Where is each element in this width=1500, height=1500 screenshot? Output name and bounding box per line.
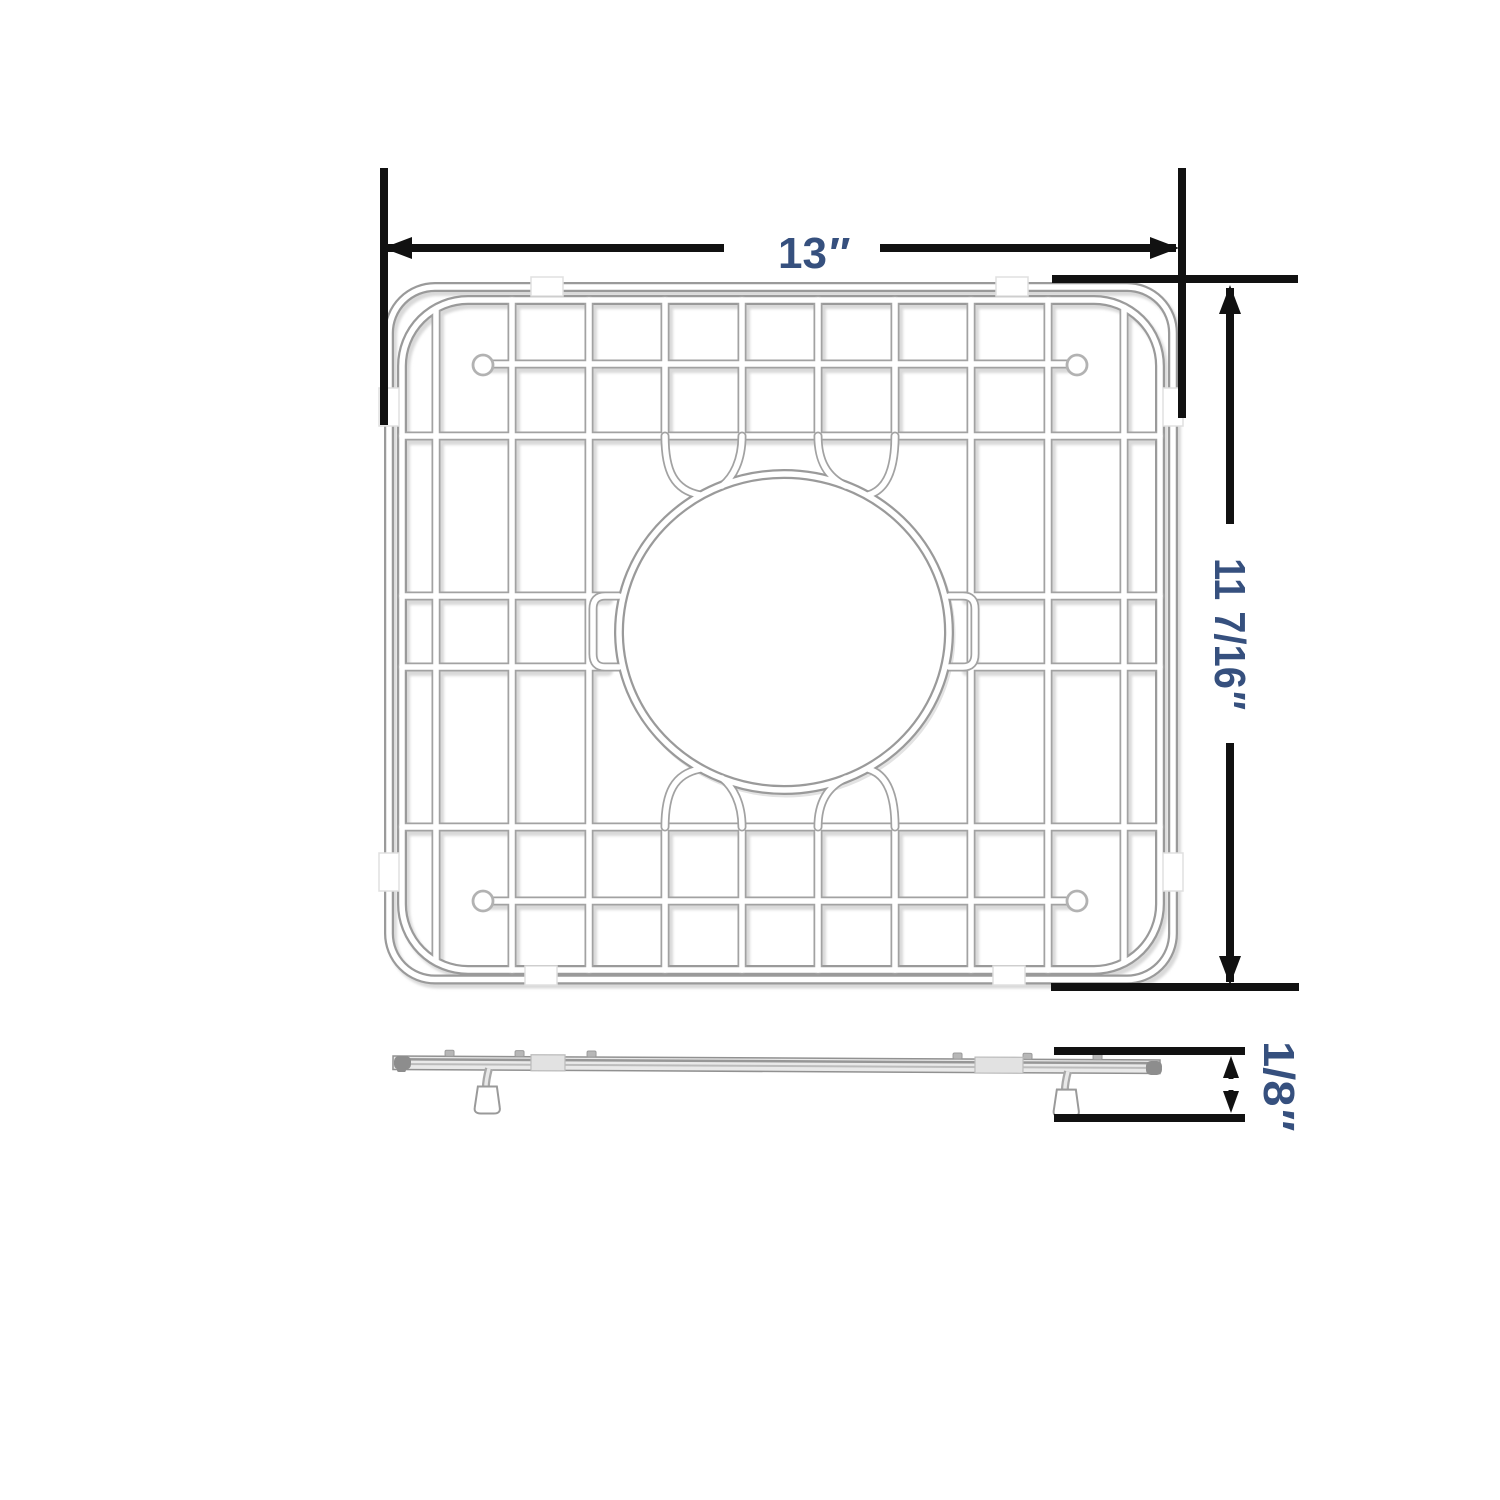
svg-text:13″: 13″	[778, 229, 850, 278]
svg-text:11 7/16″: 11 7/16″	[1205, 558, 1254, 710]
svg-text:1/8″: 1/8″	[1254, 1041, 1303, 1131]
